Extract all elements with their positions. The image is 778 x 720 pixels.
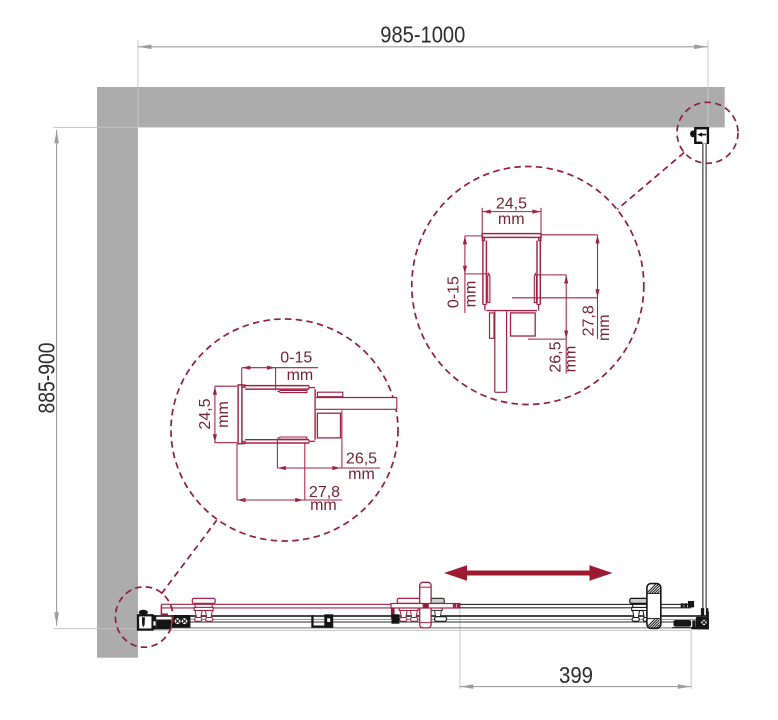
svg-text:0-15: 0-15 [280,349,312,366]
svg-text:mm: mm [287,367,314,384]
svg-text:26,5: 26,5 [346,450,377,467]
svg-text:mm: mm [348,466,375,483]
svg-text:0-15: 0-15 [446,276,463,308]
svg-text:24,5: 24,5 [496,195,527,212]
svg-text:mm: mm [462,281,479,308]
svg-text:mm: mm [310,497,337,514]
svg-text:399: 399 [559,662,593,688]
svg-text:mm: mm [563,346,580,373]
svg-text:985-1000: 985-1000 [380,22,465,48]
svg-text:mm: mm [498,211,525,228]
svg-text:mm: mm [596,314,613,341]
svg-text:mm: mm [215,401,232,428]
svg-text:885-900: 885-900 [34,343,60,414]
svg-text:24,5: 24,5 [197,398,214,429]
